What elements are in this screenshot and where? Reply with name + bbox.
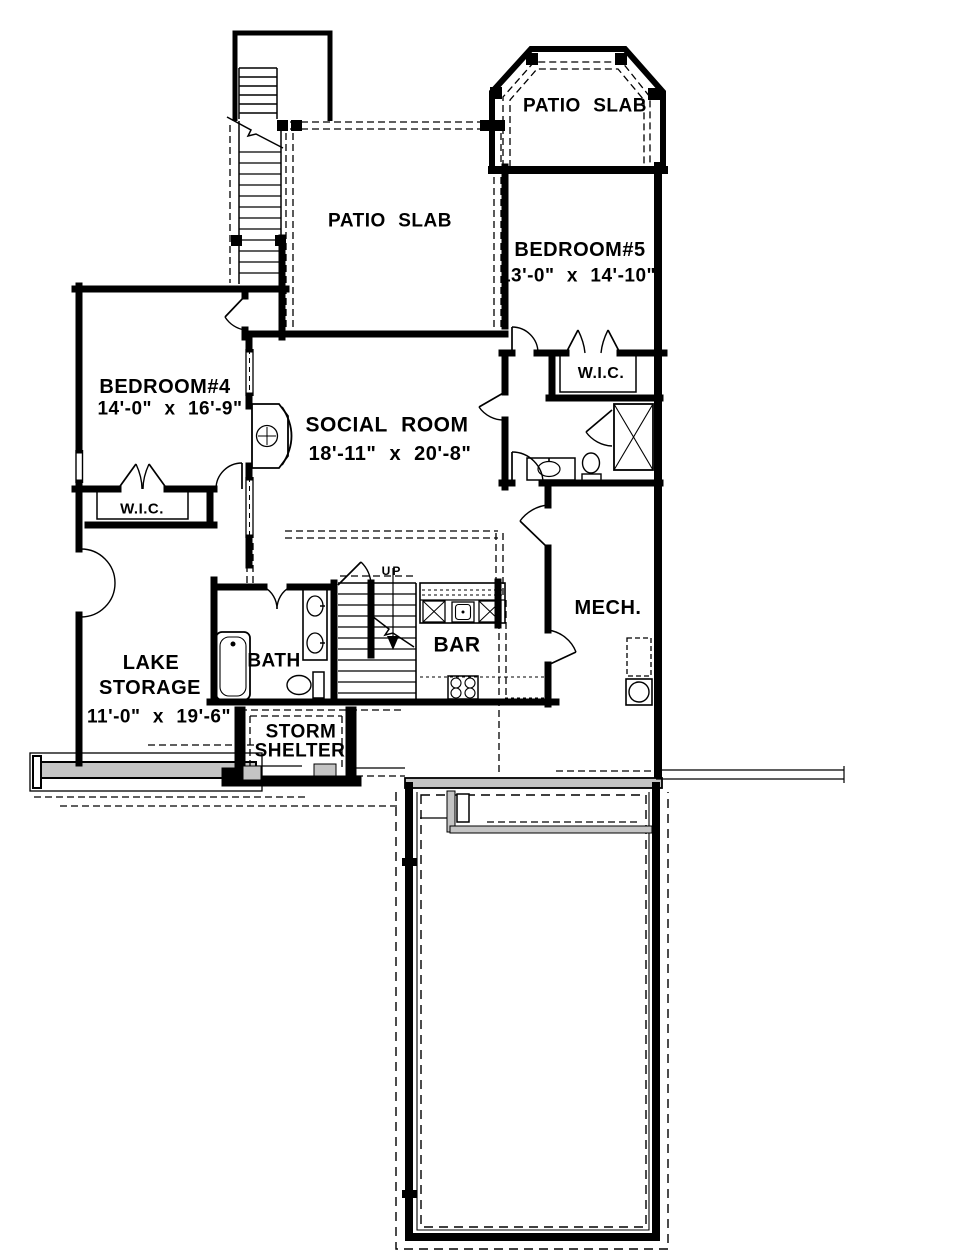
shower-fixture — [614, 404, 653, 470]
toilet-fixture — [287, 672, 324, 698]
room-label-bath: BATH — [247, 652, 300, 671]
floor-plan-drawing — [0, 0, 970, 1255]
room-label-social-room: SOCIAL ROOM — [306, 415, 469, 436]
right-bath-toilet-fixture — [582, 453, 601, 482]
room-label-bar: BAR — [434, 635, 481, 656]
room-label-storm-shelter-2: SHELTER — [255, 742, 346, 761]
garage-slab-outline — [356, 766, 844, 1237]
room-label-wic-right: W.I.C. — [578, 366, 625, 382]
bar-counter-fixture — [420, 583, 505, 623]
slab-outline-dashed — [396, 792, 668, 1249]
room-dims-lake-storage: 11'-0" x 19'-6" — [87, 708, 231, 727]
interior-stairs — [338, 568, 416, 702]
room-dims-social-room: 18'-11" x 20'-8" — [309, 444, 472, 464]
room-label-lake-storage-2: STORAGE — [99, 678, 201, 698]
room-label-lake-storage-1: LAKE — [123, 653, 179, 673]
room-label-patio-slab-bay: PATIO SLAB — [523, 97, 647, 116]
room-label-mech: MECH. — [575, 598, 642, 618]
stairs-up-label: UP — [382, 565, 403, 577]
room-label-patio-slab-mid: PATIO SLAB — [328, 212, 452, 231]
room-label-bedroom-5: BEDROOM#5 — [514, 240, 645, 260]
vanity-sinks-fixture — [303, 589, 327, 660]
room-label-wic-left: W.I.C. — [120, 502, 164, 517]
window-left-wall — [76, 450, 83, 483]
room-dims-bedroom-5: 13'-0" x 14'-10" — [500, 267, 656, 286]
fireplace-fixture — [252, 404, 292, 468]
room-label-storm-shelter-1: STORM — [266, 723, 337, 742]
water-heater-fixture — [626, 679, 652, 705]
room-label-bedroom-4: BEDROOM#4 — [99, 377, 230, 397]
bathtub-fixture — [216, 632, 250, 700]
cooktop-fixture — [448, 676, 478, 699]
room-dims-bedroom-4: 14'-0" x 16'-9" — [97, 400, 242, 419]
floor-plan: PATIO SLAB PATIO SLAB BEDROOM#5 13'-0" x… — [0, 0, 970, 1255]
